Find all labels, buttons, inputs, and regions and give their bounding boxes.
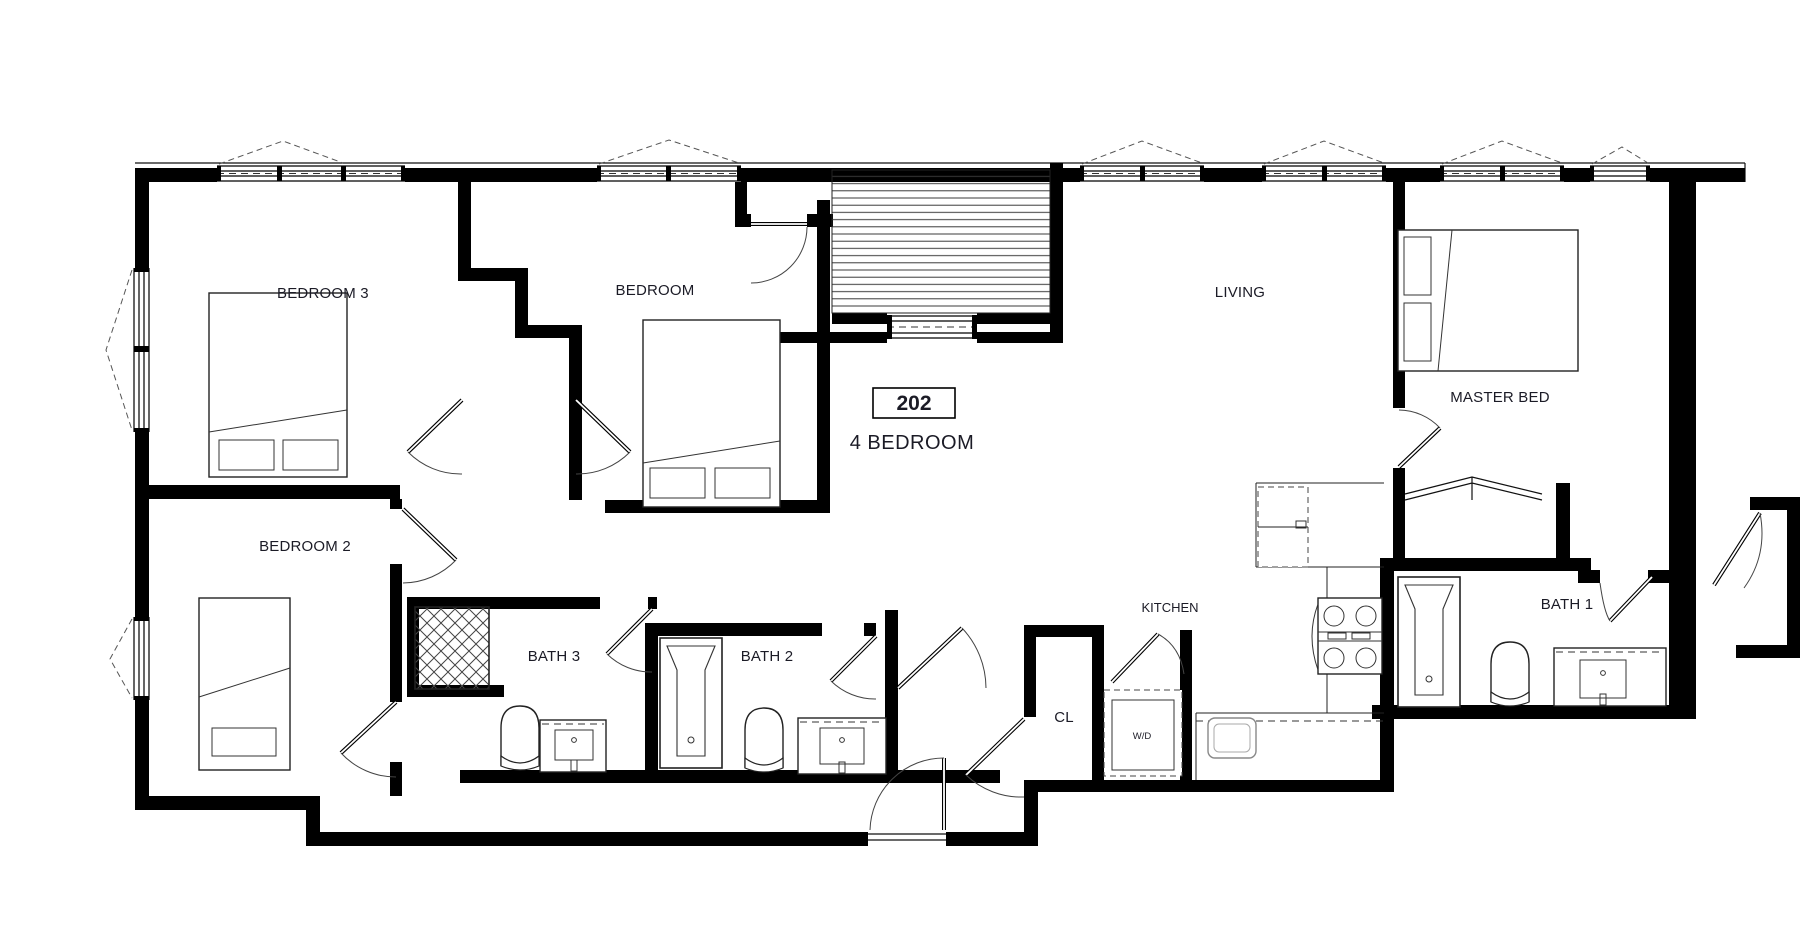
range-stove-icon xyxy=(1312,598,1382,674)
window-top-master-1-icon xyxy=(1440,165,1564,182)
door-bath2-icon xyxy=(831,636,876,699)
kitchen-sink-icon xyxy=(1208,718,1256,758)
door-hall-icon xyxy=(898,628,986,688)
window-top-master-2-icon xyxy=(1590,165,1650,182)
room-label-bedroom: BEDROOM xyxy=(616,282,695,299)
bed-bedroom3-icon xyxy=(209,293,347,477)
window-top-bedroom-icon xyxy=(597,165,741,182)
door-master-icon xyxy=(1399,410,1440,467)
door-laundry-icon xyxy=(1112,634,1184,682)
window-left-bedroom2-icon xyxy=(133,617,150,700)
room-label-closet: CL xyxy=(1054,709,1074,726)
tub-bath1-icon xyxy=(1398,577,1460,707)
unit-number: 202 xyxy=(896,392,931,415)
refrigerator-icon xyxy=(1258,487,1308,567)
room-label-bedroom-2: BEDROOM 2 xyxy=(259,538,351,555)
bed-bedroom2-icon xyxy=(199,598,290,770)
door-bedroom2-lower-icon xyxy=(341,702,396,777)
balcony-slider-icon xyxy=(887,314,977,340)
shower-bath3-icon xyxy=(415,607,489,689)
room-label-kitchen: KITCHEN xyxy=(1141,600,1198,615)
door-closet-icon xyxy=(966,719,1024,797)
room-label-bedroom-3: BEDROOM 3 xyxy=(277,285,369,302)
door-bath1-icon xyxy=(1600,577,1652,621)
room-label-bath-3: BATH 3 xyxy=(528,648,581,665)
door-master-closet-icon xyxy=(1405,477,1542,500)
room-label-master-bed: MASTER BED xyxy=(1450,389,1550,406)
room-label-bath-2: BATH 2 xyxy=(741,648,794,665)
floor-plan: BEDROOM 3 BEDROOM LIVING MASTER BED BEDR… xyxy=(0,0,1800,927)
sink-bath2-icon xyxy=(798,718,886,774)
tub-bath2-icon xyxy=(660,638,722,768)
unit-type: 4 BEDROOM xyxy=(850,432,975,454)
sink-bath3-icon xyxy=(540,720,606,772)
floor-plan-svg: BEDROOM 3 BEDROOM LIVING MASTER BED BEDR… xyxy=(0,0,1800,927)
bed-master-icon xyxy=(1398,230,1578,371)
balcony-deck xyxy=(832,170,1050,313)
window-left-bedroom3-icon xyxy=(133,268,150,432)
door-neighbor-icon xyxy=(1714,513,1762,588)
door-bedroom3-icon xyxy=(408,400,462,474)
door-bedroom2-upper-icon xyxy=(403,509,456,583)
unit-title: 202 4 BEDROOM xyxy=(850,388,975,454)
toilet-bath3-icon xyxy=(501,706,539,770)
room-label-washer-dryer: W/D xyxy=(1133,731,1152,742)
door-bedroom-balcony-icon xyxy=(751,224,807,283)
toilet-bath1-icon xyxy=(1491,642,1529,706)
room-label-bath-1: BATH 1 xyxy=(1541,596,1594,613)
door-bedroom-icon xyxy=(576,400,630,474)
bed-bedroom-icon xyxy=(643,320,780,507)
window-top-living-1-icon xyxy=(1080,165,1204,182)
room-label-living: LIVING xyxy=(1215,284,1265,301)
window-top-living-2-icon xyxy=(1262,165,1386,182)
sink-bath1-icon xyxy=(1554,648,1666,706)
toilet-bath2-icon xyxy=(745,708,783,772)
window-top-bedroom3-icon xyxy=(217,165,405,182)
